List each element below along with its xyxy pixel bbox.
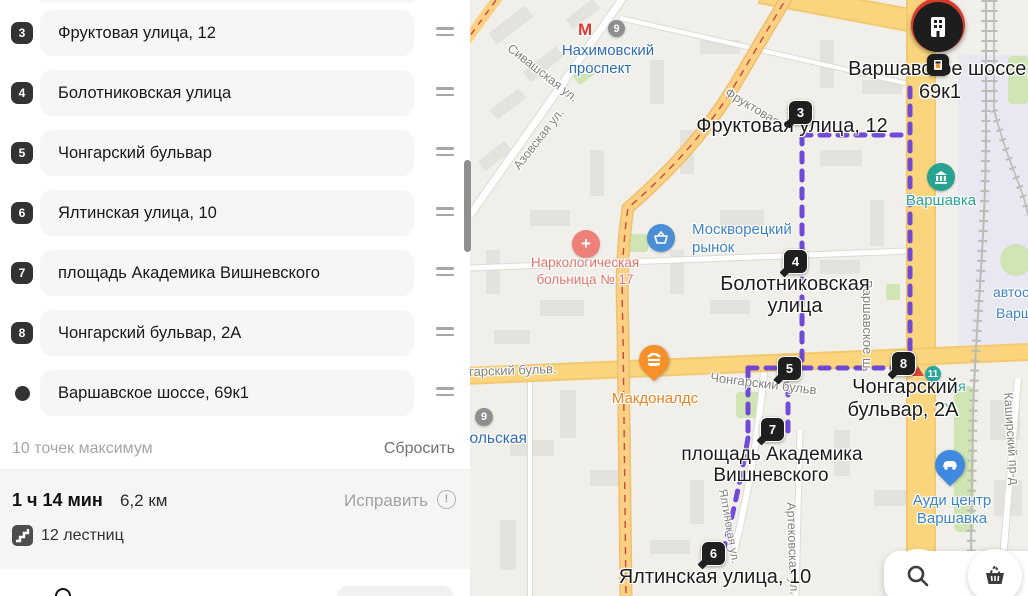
map-waypoint-3[interactable]: 3 <box>788 100 813 125</box>
metro-station-label[interactable]: польская <box>470 430 527 448</box>
fix-route-button[interactable]: Исправить <box>344 491 428 511</box>
drag-handle-icon[interactable] <box>436 327 454 339</box>
waypoint-address: Ялтинская улица, 10 <box>58 204 217 223</box>
waypoint-address-input[interactable]: Фруктовая улица, 12 <box>40 10 414 56</box>
metro-line-9-badge: 9 <box>475 408 493 426</box>
waypoint-row: 3 Фруктовая улица, 12 <box>0 10 470 56</box>
previous-waypoint-field-sliver <box>40 0 414 3</box>
list-footer: 10 точек максимум Сбросить <box>0 428 470 468</box>
waypoint-6-label: Ялтинская улица, 10 <box>619 566 812 589</box>
waypoint-row: 8 Чонгарский бульвар, 2А <box>0 310 470 356</box>
waypoint-number-badge: 6 <box>11 202 33 224</box>
next-section-button[interactable] <box>337 586 453 596</box>
waypoint-8-label: бульвар, 2А <box>848 399 959 422</box>
mcdonalds-pin-icon[interactable] <box>633 339 675 381</box>
market-label[interactable]: рынок <box>692 239 734 256</box>
waypoint-number-badge: 3 <box>11 22 33 44</box>
hospital-icon[interactable]: + <box>572 230 600 258</box>
search-icon <box>905 563 931 589</box>
map-waypoint-4[interactable]: 4 <box>783 249 808 274</box>
waypoint-address-input[interactable]: площадь Академика Вишневского <box>40 250 414 296</box>
poi-label-fragment[interactable]: автос <box>993 284 1028 300</box>
reset-route-button[interactable]: Сбросить <box>384 440 455 458</box>
waypoint-address-input[interactable]: Ялтинская улица, 10 <box>40 190 414 236</box>
waypoint-7-label: Вишневского <box>713 465 828 487</box>
map-canvas[interactable]: Сивашская ул. Азовская ул. Фруктовая Чон… <box>470 0 1028 596</box>
basket-icon <box>982 564 1008 588</box>
groceries-button[interactable] <box>968 549 1022 596</box>
sidebar-scrollbar[interactable] <box>464 160 471 252</box>
route-summary: 1 ч 14 мин 6,2 км Исправить ! 12 лестниц <box>0 469 470 569</box>
drag-handle-icon[interactable] <box>436 147 454 159</box>
varshavka-label[interactable]: Варшавка <box>906 192 976 209</box>
metro-station-label[interactable]: Нахимовский <box>562 42 654 59</box>
market-icon[interactable] <box>647 224 675 252</box>
waypoint-row: 7 площадь Академика Вишневского <box>0 250 470 296</box>
poi-label-fragment[interactable]: Варш <box>996 305 1028 321</box>
drag-handle-icon[interactable] <box>436 267 454 279</box>
route-distance: 6,2 км <box>120 491 167 511</box>
max-points-note: 10 точек максимум <box>12 440 153 458</box>
waypoint-address: Чонгарский бульвар <box>58 144 212 163</box>
waypoint-number-badge: 4 <box>11 82 33 104</box>
drag-handle-icon[interactable] <box>436 87 454 99</box>
waypoint-address: Болотниковская улица <box>58 84 231 103</box>
waypoint-number-badge: 5 <box>11 142 33 164</box>
waypoint-7-label: площадь Академика <box>681 444 862 466</box>
dest-label: 69к1 <box>919 81 961 104</box>
waypoint-address-input[interactable]: Чонгарский бульвар <box>40 130 414 176</box>
audi-pin-icon[interactable] <box>929 444 971 486</box>
waypoint-row: Варшавское шоссе, 69к1 <box>0 370 470 416</box>
stairs-icon <box>12 525 33 546</box>
audi-label[interactable]: Ауди центр <box>913 492 991 509</box>
waypoint-end-dot <box>15 386 30 401</box>
destination-marker-rim <box>911 0 965 52</box>
destination-marker[interactable] <box>911 0 965 52</box>
metro-icon[interactable]: М <box>578 20 592 40</box>
map-waypoint-6[interactable]: 6 <box>701 541 726 566</box>
route-sidebar: 3 Фруктовая улица, 12 4 Болотниковская у… <box>0 0 470 596</box>
audi-label[interactable]: Варшавка <box>917 510 987 527</box>
next-section-radio-icon[interactable] <box>55 588 71 596</box>
map-waypoint-5[interactable]: 5 <box>777 356 802 381</box>
market-label[interactable]: Москворецкий <box>692 221 792 238</box>
waypoint-number-badge: 8 <box>11 322 33 344</box>
metro-line-9-badge: 9 <box>608 20 625 37</box>
stairs-count: 12 лестниц <box>41 527 124 545</box>
route-duration: 1 ч 14 мин <box>12 490 103 511</box>
building-icon <box>927 15 949 39</box>
waypoint-address: площадь Академика Вишневского <box>58 264 320 283</box>
hospital-label[interactable]: больница № 17 <box>536 272 633 287</box>
drag-handle-icon[interactable] <box>436 387 454 399</box>
waypoint-4-label: улица <box>768 295 823 318</box>
destination-submarker <box>927 54 949 76</box>
waypoint-address-input[interactable]: Болотниковская улица <box>40 70 414 116</box>
waypoint-address-input[interactable]: Варшавское шоссе, 69к1 <box>40 370 414 416</box>
waypoint-address-input[interactable]: Чонгарский бульвар, 2А <box>40 310 414 356</box>
waypoint-address: Чонгарский бульвар, 2А <box>58 324 241 343</box>
metro-station-label[interactable]: проспект <box>569 60 631 77</box>
waypoint-8-label: Чонгарский <box>852 376 958 399</box>
waypoint-row: 5 Чонгарский бульвар <box>0 130 470 176</box>
hospital-label[interactable]: Наркологическая <box>531 255 639 270</box>
drag-handle-icon[interactable] <box>436 207 454 219</box>
search-button[interactable] <box>891 549 945 596</box>
varshavka-icon[interactable] <box>927 163 955 191</box>
waypoint-number-badge: 7 <box>11 262 33 284</box>
map-waypoint-8[interactable]: 8 <box>891 351 916 376</box>
waypoint-address: Варшавское шоссе, 69к1 <box>58 384 249 403</box>
waypoint-4-label: Болотниковская <box>720 273 869 296</box>
map-waypoint-7[interactable]: 7 <box>760 417 785 442</box>
waypoint-row: 6 Ялтинская улица, 10 <box>0 190 470 236</box>
waypoint-address: Фруктовая улица, 12 <box>58 24 216 43</box>
waypoint-row: 4 Болотниковская улица <box>0 70 470 116</box>
drag-handle-icon[interactable] <box>436 27 454 39</box>
mcdonalds-label[interactable]: Макдоналдс <box>612 390 698 407</box>
route-editor-app: 3 Фруктовая улица, 12 4 Болотниковская у… <box>0 0 1028 596</box>
warning-icon[interactable]: ! <box>437 490 456 509</box>
